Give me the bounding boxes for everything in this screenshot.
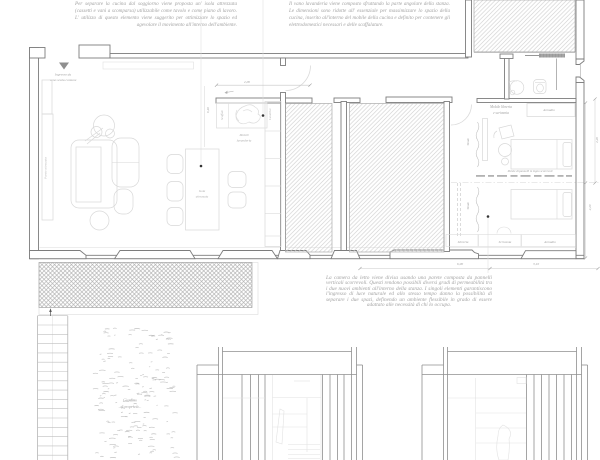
svg-text:e scrivania: e scrivania	[493, 111, 509, 115]
svg-text:2,00: 2,00	[244, 80, 250, 85]
svg-text:Tende: Tende	[466, 138, 470, 146]
svg-text:3,10: 3,10	[533, 262, 539, 267]
svg-text:2,20: 2,20	[595, 137, 600, 143]
svg-text:..di proprietà...: ..di proprietà...	[119, 405, 142, 409]
svg-text:Tende: Tende	[466, 202, 470, 210]
svg-text:2,20: 2,20	[588, 204, 593, 210]
svg-text:Ingresso da: Ingresso da	[54, 73, 72, 77]
svg-text:Parete di pannelli in legno sc: Parete di pannelli in legno scorrevoli	[507, 169, 553, 173]
svg-text:vano scala comune: vano scala comune	[50, 78, 77, 82]
svg-text:Armadio: Armadio	[542, 108, 555, 112]
svg-text:Isola: Isola	[198, 189, 206, 193]
svg-text:Libreria: Libreria	[457, 240, 469, 244]
svg-text:Armadio: Armadio	[543, 240, 556, 244]
svg-text:6,90: 6,90	[457, 262, 463, 267]
svg-text:lavanderia: lavanderia	[237, 139, 252, 143]
svg-text:6,40: 6,40	[206, 107, 211, 113]
svg-text:Mobili: Mobili	[238, 133, 248, 137]
svg-text:Parete attrezzata: Parete attrezzata	[44, 157, 48, 180]
svg-text:Mobile libreria: Mobile libreria	[489, 105, 512, 109]
svg-text:Giardino: Giardino	[123, 399, 137, 403]
svg-text:Scaffale: Scaffale	[220, 110, 224, 120]
svg-text:Lavatrice: Lavatrice	[268, 108, 272, 121]
svg-text:attrezzata: attrezzata	[196, 195, 209, 199]
svg-text:Scrivania: Scrivania	[499, 240, 512, 244]
